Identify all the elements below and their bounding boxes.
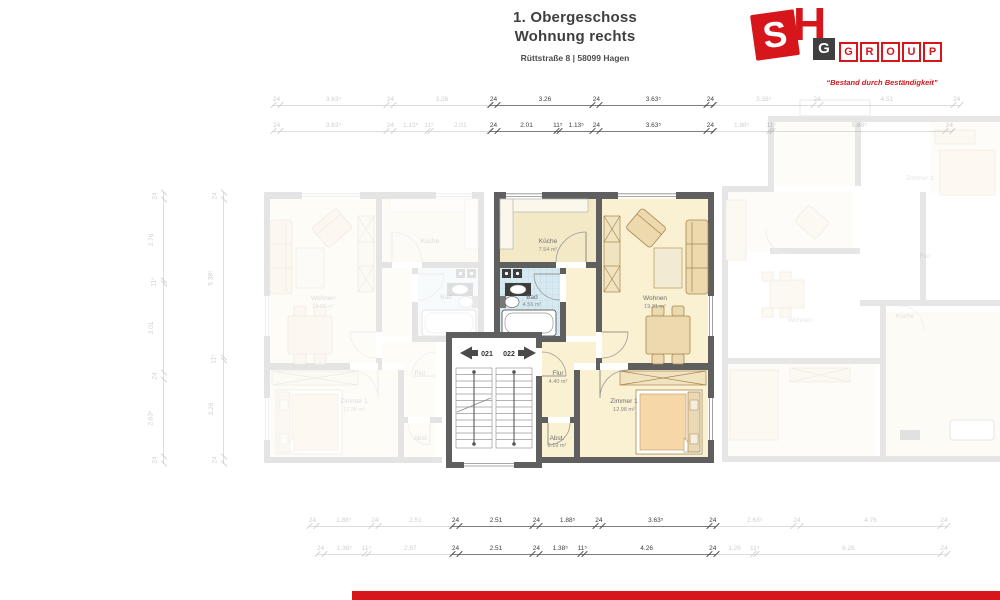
dim-chain-faded: 3.38⁵244.5124 <box>714 93 960 106</box>
faded-right-apartment <box>722 100 1000 462</box>
logo-g-box: G <box>813 38 835 60</box>
label-zimmer1: Zimmer 1 <box>610 398 638 405</box>
stairwell: 021 022 <box>446 332 542 468</box>
company-logo: S H G GROUP “Bestand durch Beständigkeit… <box>745 4 985 96</box>
unit-number-right: 022 <box>503 351 515 358</box>
label-bad-area: 4.56 m² <box>523 302 542 308</box>
sofa <box>686 220 708 294</box>
title-block: 1. Obergeschoss Wohnung rechts Rüttstraß… <box>450 8 700 63</box>
footer-accent-bar <box>352 591 1000 600</box>
svg-text:Zimmer 1: Zimmer 1 <box>340 398 368 405</box>
label-abst-area: 2.19 m² <box>548 443 567 449</box>
dim-chain-top-1: 243.26243.63⁵24 <box>490 93 714 106</box>
label-abst: Abst. <box>550 435 565 442</box>
svg-text:Küche: Küche <box>421 238 440 245</box>
svg-text:Wohnen: Wohnen <box>311 295 335 302</box>
svg-text:19.31 m²: 19.31 m² <box>312 304 334 310</box>
dim-chain-vertical: 242.7611⁵3.01242.63⁵24 <box>151 192 164 464</box>
address: Rüttstraße 8 | 58099 Hagen <box>450 53 700 63</box>
room-flur-upper <box>566 268 596 336</box>
bed <box>636 390 702 454</box>
dim-chain-faded: 243.63⁵243.26 <box>273 93 490 106</box>
dim-chain-faded: 243.63⁵241.13⁵11⁵2.01 <box>273 119 490 132</box>
svg-text:Flur: Flur <box>919 253 931 260</box>
dim-chain-top-2: 242.0111⁵1.13⁵243.63⁵24 <box>490 119 714 132</box>
label-flur-area: 4.40 m² <box>549 379 568 385</box>
dim-chain-faded: 241.88⁵242.51 <box>309 514 452 527</box>
label-kueche-area: 7.54 m² <box>539 247 558 253</box>
wardrobe <box>620 371 706 385</box>
label-zimmer1-area: 12.98 m² <box>613 407 635 413</box>
label-wohnen: Wohnen <box>643 295 667 302</box>
page: 021 022 Küche 7.54 m² Bad 4.56 m² Wohnen… <box>0 0 1000 600</box>
label-flur: Flur <box>552 370 564 377</box>
dim-chain-bottom-1: 242.51241.88⁵243.63⁵24 <box>452 514 716 527</box>
dim-chain-faded: 241.38⁵11⁵2.87 <box>317 542 453 555</box>
svg-text:Abst.: Abst. <box>414 435 429 442</box>
dim-chain-vertical: 245.38⁵11⁵3.2624 <box>211 192 224 464</box>
page-title-line1: 1. Obergeschoss <box>450 8 700 27</box>
svg-text:Bad: Bad <box>440 294 452 301</box>
dim-chain-faded: 1.2611⁵6.2624 <box>716 542 948 555</box>
logo-tagline: “Bestand durch Beständigkeit” <box>787 78 977 87</box>
toilet <box>500 296 519 308</box>
coffee-table <box>654 248 682 288</box>
label-kueche: Küche <box>539 238 558 245</box>
page-title-line2: Wohnung rechts <box>450 27 700 46</box>
svg-text:12.98 m²: 12.98 m² <box>343 407 365 413</box>
svg-text:Flur: Flur <box>414 370 426 377</box>
dim-chain-bottom-2: 242.51241.38⁵11⁵4.2624 <box>452 542 716 555</box>
svg-text:Küche: Küche <box>896 313 915 320</box>
logo-group-word: GROUP <box>839 42 942 62</box>
label-wohnen-area: 19.31 m² <box>644 304 666 310</box>
dim-chain-faded: 2.63⁵244.7624 <box>716 514 948 527</box>
svg-text:Wohnen: Wohnen <box>788 317 812 324</box>
label-bad: Bad <box>526 294 538 301</box>
svg-text:Zimmer 1: Zimmer 1 <box>906 175 934 182</box>
unit-number-left: 021 <box>481 351 493 358</box>
wohnen-cabinet <box>604 216 620 292</box>
room-flur-mid <box>542 342 596 363</box>
dim-chain-faded: 1.88⁵11⁵5.88⁵24 <box>714 119 953 132</box>
